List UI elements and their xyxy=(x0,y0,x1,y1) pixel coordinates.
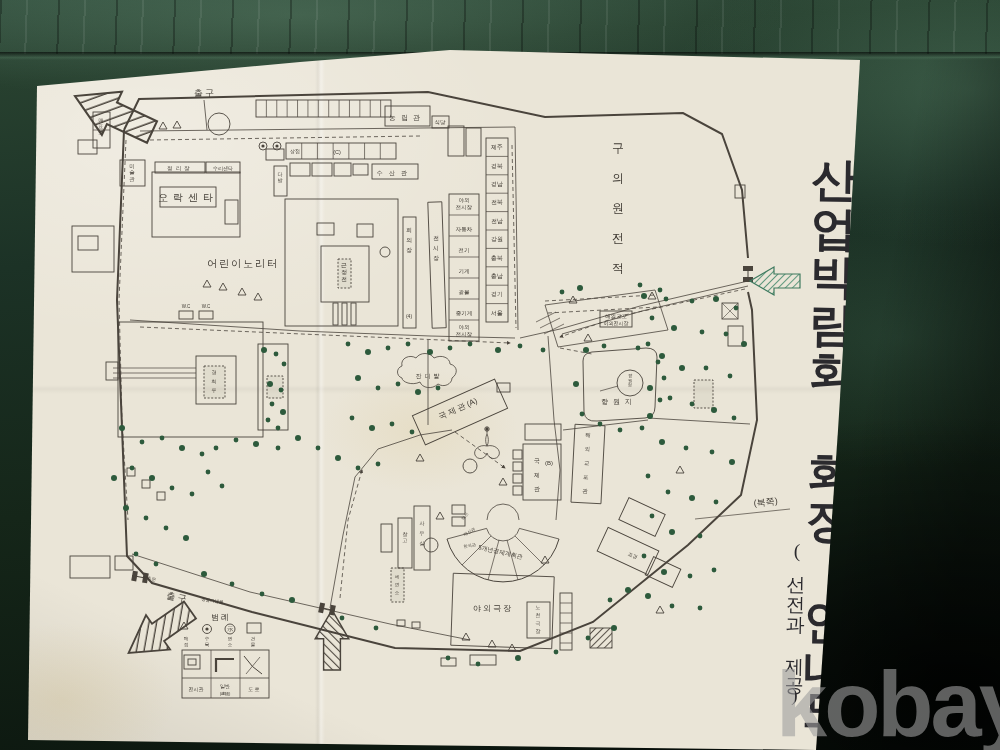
kiosk-triangle xyxy=(219,283,227,290)
tree-symbol xyxy=(659,439,665,445)
tree-symbol xyxy=(698,606,703,611)
map-label: 경회루 xyxy=(212,369,217,393)
map-label: 국 제 관 (A) xyxy=(437,396,479,421)
map-label: 근정전 xyxy=(341,262,347,282)
entrance-arrow xyxy=(750,267,800,295)
map-label: (建物) xyxy=(220,691,231,697)
map-building xyxy=(513,462,522,471)
map-line xyxy=(487,528,520,541)
map-building xyxy=(728,326,743,346)
map-label: 매점 xyxy=(184,636,189,647)
tree-symbol xyxy=(688,574,693,579)
map-line xyxy=(722,303,738,319)
map-label: 농림관 xyxy=(389,114,425,121)
tree-symbol xyxy=(714,500,719,505)
map-building xyxy=(351,303,356,325)
tree-symbol xyxy=(732,416,737,421)
tree-symbol xyxy=(119,425,125,431)
tree-symbol xyxy=(140,440,145,445)
map-label: 상점 xyxy=(290,148,300,154)
map-label: (B) xyxy=(545,460,553,466)
map-label: (C) xyxy=(333,149,341,155)
kobay-watermark: kobay xyxy=(776,652,1000,750)
tree-symbol xyxy=(230,582,235,587)
tree-symbol xyxy=(190,492,195,497)
map-dot xyxy=(485,427,488,430)
map-label: 전시장 xyxy=(456,204,473,211)
tree-symbol xyxy=(316,446,321,451)
map-label: 혁신 xyxy=(460,511,469,521)
map-label: 서울 xyxy=(491,310,503,316)
tree-symbol xyxy=(220,484,225,489)
tree-symbol xyxy=(476,662,481,667)
map-line xyxy=(216,659,234,672)
map-label: 야 외 극 장 xyxy=(473,604,512,613)
tree-symbol xyxy=(427,349,433,355)
tree-symbol xyxy=(280,409,286,415)
map-line xyxy=(548,336,560,520)
tree-symbol xyxy=(668,396,673,401)
map-building xyxy=(381,524,392,552)
tree-symbol xyxy=(659,353,665,359)
map-label: 정리장 xyxy=(167,165,193,172)
tree-symbol xyxy=(267,381,273,387)
tree-symbol xyxy=(602,344,607,349)
map-building xyxy=(188,659,196,665)
tree-symbol xyxy=(160,436,165,441)
tree-symbol xyxy=(636,346,641,351)
map-label: 충북 xyxy=(491,255,503,261)
tree-symbol xyxy=(670,604,675,609)
kiosk-triangle xyxy=(656,606,664,613)
tree-symbol xyxy=(289,597,295,603)
tree-symbol xyxy=(335,455,341,461)
map-building xyxy=(619,498,665,537)
tree-symbol xyxy=(577,285,583,291)
tree-symbol xyxy=(369,425,375,431)
map-label: 국제관 xyxy=(534,458,540,492)
tree-symbol xyxy=(340,616,345,621)
map-dot xyxy=(275,144,278,147)
map-label: W.C xyxy=(182,304,191,309)
map-label: 해외교포 xyxy=(605,313,628,319)
map-label: 회의장 xyxy=(406,227,412,253)
tree-symbol xyxy=(260,592,265,597)
map-label: 한국관 xyxy=(463,542,477,549)
tree-symbol xyxy=(650,514,655,519)
map-label: 기계 xyxy=(459,268,470,274)
tree-symbol xyxy=(658,288,663,293)
map-building xyxy=(597,527,659,574)
map-label: 오락센타 xyxy=(158,192,218,203)
map-line xyxy=(695,509,790,519)
map-building xyxy=(590,628,612,648)
tree-symbol xyxy=(154,562,159,567)
tree-symbol xyxy=(662,376,667,381)
map-label: 야외 xyxy=(459,324,470,330)
tree-symbol xyxy=(266,418,271,423)
tree-symbol xyxy=(669,529,675,535)
tree-symbol xyxy=(658,398,663,403)
map-building xyxy=(694,380,713,408)
map-building xyxy=(414,506,430,570)
map-building xyxy=(184,655,200,669)
map-label: 노천극장 xyxy=(536,604,541,634)
map-building xyxy=(157,492,165,500)
tree-symbol xyxy=(376,462,381,467)
map-label: 범 례 xyxy=(211,613,229,622)
tree-symbol xyxy=(346,342,351,347)
tree-symbol xyxy=(448,346,453,351)
tree-symbol xyxy=(710,450,715,455)
tree-symbol xyxy=(468,342,473,347)
tree-symbol xyxy=(374,626,379,631)
map-building xyxy=(312,163,332,176)
tree-symbol xyxy=(729,459,735,465)
kiosk-triangle xyxy=(488,640,496,647)
map-label: 출 구 xyxy=(194,88,215,98)
map-label: 전기 xyxy=(459,247,470,253)
map-label: (4) xyxy=(406,313,412,319)
map-label: 수리센타 xyxy=(213,165,233,171)
tree-symbol xyxy=(713,296,719,302)
map-building xyxy=(199,311,213,319)
map-building xyxy=(403,217,416,328)
map-building xyxy=(470,655,496,665)
map-label: 5개년경제계획관 xyxy=(477,544,523,561)
map-label: 충남 xyxy=(491,273,503,279)
tree-symbol xyxy=(689,495,695,501)
tree-symbol xyxy=(647,413,653,419)
map-building xyxy=(118,322,263,437)
tree-symbol xyxy=(276,426,281,431)
tree-symbol xyxy=(130,466,135,471)
tree-symbol xyxy=(573,381,579,387)
tree-symbol xyxy=(734,306,739,311)
tree-symbol xyxy=(356,466,361,471)
map-label: 향원지 xyxy=(601,398,637,405)
map-building xyxy=(497,383,510,392)
map-circle xyxy=(424,538,438,552)
map-building xyxy=(267,376,283,398)
tree-symbol xyxy=(376,386,381,391)
map-building xyxy=(513,474,522,483)
tree-symbol xyxy=(270,402,275,407)
map-label: 체신관 xyxy=(463,526,477,537)
couch-crease-shadow xyxy=(840,58,1000,750)
tree-symbol xyxy=(608,598,613,603)
map-line xyxy=(545,295,655,301)
kiosk-triangle xyxy=(416,454,424,461)
map-label: 창고 xyxy=(403,531,408,543)
map-label: W.C xyxy=(202,304,211,309)
tree-symbol xyxy=(541,348,546,353)
map-label: 강원 xyxy=(491,236,503,242)
tree-symbol xyxy=(598,422,603,427)
map-dot xyxy=(261,144,264,147)
kiosk-triangle xyxy=(584,334,592,341)
map-label: 변소 xyxy=(228,636,233,647)
tree-symbol xyxy=(183,535,189,541)
map-building xyxy=(78,140,97,154)
tree-symbol xyxy=(645,593,651,599)
map-label: 미술관 xyxy=(129,163,135,182)
tree-symbol xyxy=(282,362,287,367)
tree-symbol xyxy=(611,625,617,631)
map-label: 전북 xyxy=(491,199,503,205)
tree-symbol xyxy=(625,587,631,593)
map-label: 광물 xyxy=(459,289,471,295)
tree-symbol xyxy=(671,325,677,331)
map-label: 경북 xyxy=(491,163,503,170)
tree-symbol xyxy=(684,446,689,451)
map-label: 다방 xyxy=(278,171,283,183)
kiosk-triangle xyxy=(173,121,181,128)
tree-symbol xyxy=(647,385,653,391)
map-building xyxy=(560,593,572,650)
map-label: 어린이노리터 xyxy=(207,258,279,269)
map-circle xyxy=(208,113,230,135)
map-booth-row xyxy=(286,143,396,159)
tree-symbol xyxy=(274,352,279,357)
map-line xyxy=(475,434,500,459)
tree-symbol xyxy=(724,332,729,337)
map-label: 중기계 xyxy=(456,310,473,316)
tree-symbol xyxy=(200,452,205,457)
map-label: 매표소 xyxy=(99,117,104,135)
tree-symbol xyxy=(279,388,284,393)
map-building xyxy=(334,163,351,176)
map-label: 수목 xyxy=(205,636,210,647)
tree-symbol xyxy=(690,299,695,304)
kiosk-triangle xyxy=(254,293,262,300)
map-label: 전시장 xyxy=(456,331,473,338)
tree-symbol xyxy=(646,474,651,479)
map-label: 일반 xyxy=(220,683,230,689)
map-line xyxy=(548,307,658,313)
tree-symbol xyxy=(583,347,589,353)
map-building xyxy=(353,164,368,175)
map-label: 출 구 xyxy=(166,590,188,603)
exit-arrow xyxy=(65,75,162,154)
map-building xyxy=(142,480,150,488)
tree-symbol xyxy=(179,445,185,451)
tree-symbol xyxy=(170,486,175,491)
tree-symbol xyxy=(261,347,267,353)
map-label: 수산관 xyxy=(377,170,413,176)
tree-symbol xyxy=(728,374,733,379)
map-label: 경남 xyxy=(491,181,503,188)
tree-symbol xyxy=(698,534,703,539)
map-label: 잔디밭 xyxy=(416,373,443,379)
map-line xyxy=(150,136,420,140)
map-building xyxy=(266,149,284,160)
map-building xyxy=(398,518,412,568)
map-line xyxy=(520,281,748,338)
map-line xyxy=(398,354,457,388)
tree-symbol xyxy=(656,360,661,365)
tree-symbol xyxy=(679,365,685,371)
tree-symbol xyxy=(580,412,585,417)
tree-symbol xyxy=(712,568,717,573)
map-building xyxy=(397,620,405,626)
map-label: 야외 xyxy=(459,197,470,203)
tree-symbol xyxy=(149,475,155,481)
map-line xyxy=(536,312,564,334)
map-building xyxy=(152,172,240,237)
tree-symbol xyxy=(390,422,395,427)
map-building xyxy=(428,202,446,328)
map-line xyxy=(455,432,505,468)
tree-symbol xyxy=(554,650,559,655)
tree-symbol xyxy=(700,330,705,335)
map-label: 구의원전적 xyxy=(612,141,624,275)
kiosk-triangle xyxy=(203,280,211,287)
tree-symbol xyxy=(276,446,281,451)
tree-symbol xyxy=(642,554,647,559)
map-label: 야외전시장 xyxy=(604,320,629,326)
tree-symbol xyxy=(410,430,415,435)
tree-symbol xyxy=(123,505,129,511)
tree-symbol xyxy=(704,366,709,371)
tree-symbol xyxy=(295,435,301,441)
tree-symbol xyxy=(350,416,355,421)
map-label: 자동차 xyxy=(456,226,473,232)
map-label: 전남 xyxy=(491,218,503,224)
kiosk-triangle xyxy=(436,512,444,519)
map-building xyxy=(523,444,561,500)
tree-symbol xyxy=(666,490,671,495)
tree-symbol xyxy=(446,656,451,661)
map-circle xyxy=(380,247,390,257)
map-building xyxy=(466,128,481,156)
map-label: 전시장 xyxy=(433,235,439,261)
tree-symbol xyxy=(741,341,747,347)
map-building xyxy=(342,303,347,325)
tree-symbol xyxy=(386,346,391,351)
map-building xyxy=(448,126,464,156)
map-label: 해외교포관 xyxy=(582,432,591,494)
kiosk-triangle xyxy=(541,556,549,563)
map-label: 사무실 xyxy=(420,520,425,546)
map-line xyxy=(563,420,648,430)
tree-symbol xyxy=(664,297,669,302)
tree-symbol xyxy=(646,342,651,347)
tree-symbol xyxy=(515,655,521,661)
tree-symbol xyxy=(406,342,411,347)
map-line xyxy=(560,603,572,643)
tree-symbol xyxy=(396,382,401,387)
map-building xyxy=(317,223,334,235)
kiosk-triangle xyxy=(499,478,507,485)
map-label: 정원기념물 xyxy=(201,596,224,605)
tree-symbol xyxy=(415,389,421,395)
tree-symbol xyxy=(711,407,717,413)
map-line xyxy=(140,127,515,131)
tree-symbol xyxy=(518,344,523,349)
tree-symbol xyxy=(201,571,207,577)
tree-symbol xyxy=(640,426,645,431)
map-label: 세면소 xyxy=(395,574,400,595)
tree-symbol xyxy=(661,569,667,575)
tree-symbol xyxy=(144,516,149,521)
map-line xyxy=(204,100,207,130)
map-building xyxy=(179,311,193,319)
tree-symbol xyxy=(355,375,361,381)
tree-symbol xyxy=(690,402,695,407)
map-label: (북쪽) xyxy=(753,496,778,508)
map-building xyxy=(412,622,420,628)
tree-symbol xyxy=(365,349,371,355)
map-label: 示 xyxy=(227,625,233,632)
tree-symbol xyxy=(164,526,169,531)
map-building xyxy=(106,362,118,380)
map-label: 조경 xyxy=(627,550,639,561)
map-label: 건물 xyxy=(251,636,256,647)
tree-symbol xyxy=(586,636,591,641)
kiosk-triangle xyxy=(676,466,684,473)
map-label: 식당 xyxy=(435,119,447,126)
couch-back-pleats xyxy=(0,0,1000,54)
map-building xyxy=(247,623,261,633)
map-label: 전시관 xyxy=(189,686,204,692)
map-label: 경기 xyxy=(491,291,503,298)
map-booth-row xyxy=(256,100,391,117)
map-label: 향원정 xyxy=(628,373,633,387)
tree-symbol xyxy=(560,290,565,295)
map-line xyxy=(560,289,745,337)
map-circle xyxy=(463,459,477,473)
tree-symbol xyxy=(618,428,623,433)
map-building xyxy=(333,303,338,325)
map-building xyxy=(70,556,110,578)
kiosk-triangle xyxy=(238,288,246,295)
map-building xyxy=(225,200,238,224)
map-line xyxy=(583,348,657,421)
map-line xyxy=(600,386,618,391)
map-building xyxy=(290,163,310,176)
map-line xyxy=(113,368,196,378)
tree-symbol xyxy=(206,470,211,475)
map-line xyxy=(487,504,519,520)
map-label: 제주 xyxy=(491,144,503,150)
tree-symbol xyxy=(436,386,441,391)
map-building xyxy=(513,486,522,495)
map-building xyxy=(513,450,522,459)
tree-symbol xyxy=(650,316,655,321)
tree-symbol xyxy=(111,475,117,481)
tree-symbol xyxy=(495,347,501,353)
map-building xyxy=(78,236,98,250)
tree-symbol xyxy=(134,552,139,557)
tree-symbol xyxy=(214,446,219,451)
tree-symbol xyxy=(638,283,643,288)
kiosk-triangle xyxy=(159,122,167,129)
tree-symbol xyxy=(234,438,239,443)
map-label: 도 로 xyxy=(248,686,259,692)
tree-symbol xyxy=(641,293,647,299)
map-dot xyxy=(205,627,208,630)
tree-symbol xyxy=(253,441,259,447)
map-building xyxy=(357,224,373,237)
